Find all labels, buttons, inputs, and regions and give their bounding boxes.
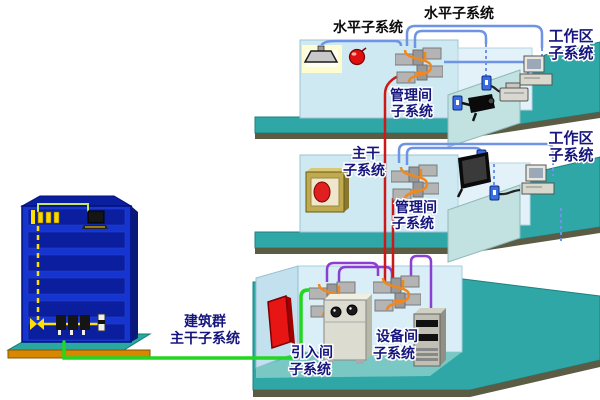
wall-outlet-icon-floor3-a — [453, 96, 462, 110]
label-work-area-floor2: 工作区 — [548, 129, 593, 147]
label-equipment-room-2: 子系统 — [373, 345, 415, 362]
diagram-canvas: 水平子系统 水平子系统 工作区 子系统 管理间 子系统 工作区 子系统 主干 子… — [0, 0, 600, 400]
wall-outlet-icon-floor2-c — [490, 186, 499, 200]
label-horizontal-subsystem-left: 水平子系统 — [333, 19, 403, 36]
label-management-floor2: 管理间 — [395, 199, 437, 216]
label-entrance-2: 子系统 — [289, 361, 331, 378]
building-side — [131, 206, 138, 342]
label-work-area-floor3-2: 子系统 — [548, 44, 593, 62]
label-work-area-floor3: 工作区 — [548, 27, 593, 45]
label-management-floor3-2: 子系统 — [391, 103, 433, 120]
label-campus-backbone: 建筑群 — [184, 313, 226, 330]
label-work-area-floor2-2: 子系统 — [548, 146, 593, 164]
cabling-system-diagram: 水平子系统 水平子系统 工作区 子系统 管理间 子系统 工作区 子系统 主干 子… — [0, 0, 600, 400]
office-building-icon — [8, 196, 150, 358]
label-backbone-2: 子系统 — [343, 162, 385, 179]
label-entrance: 引入间 — [291, 344, 333, 361]
label-management-floor2-2: 子系统 — [392, 215, 434, 232]
ceiling-lamp-icon — [302, 45, 342, 73]
entrance-terminal-icon — [268, 296, 295, 348]
label-horizontal-subsystem-right: 水平子系统 — [424, 5, 494, 22]
wall-outlet-icon-floor3-b — [482, 76, 491, 90]
label-management-floor3: 管理间 — [390, 87, 432, 104]
label-backbone: 主干 — [352, 145, 380, 162]
label-campus-backbone-2: 主干子系统 — [170, 330, 240, 347]
server-rack-icon — [414, 308, 446, 366]
label-equipment-room: 设备间 — [376, 328, 418, 345]
